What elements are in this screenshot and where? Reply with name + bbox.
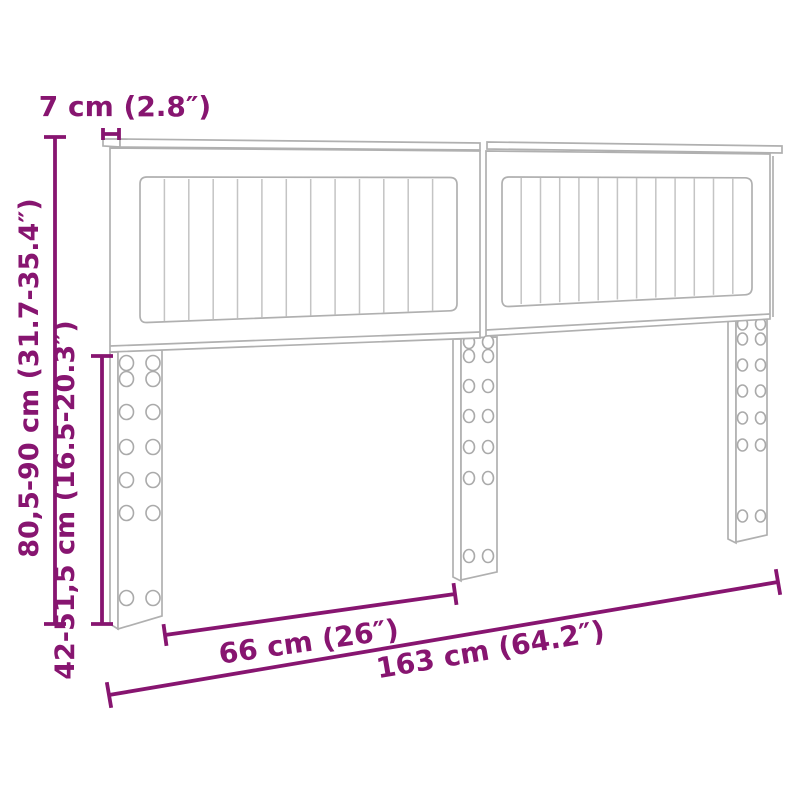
leg-middle-side-face — [453, 339, 461, 581]
dimension-line-total-width — [107, 569, 780, 708]
screw-hole — [464, 472, 475, 485]
screw-hole — [120, 591, 134, 606]
leg-right-front-face — [736, 318, 767, 542]
top-rail-left-end-face — [103, 139, 120, 147]
screw-hole — [146, 405, 160, 420]
headboard-dimension-diagram: 7 cm (2.8″) 80,5-90 cm (31.7-35.4″) 42-5… — [0, 0, 800, 800]
screw-hole — [756, 385, 766, 397]
screw-hole — [146, 473, 160, 488]
leg-left-side-face — [110, 352, 118, 629]
screw-hole — [146, 591, 160, 606]
label-top-rail-depth: 7 cm (2.8″) — [39, 90, 211, 123]
screw-hole — [483, 441, 494, 454]
screw-hole — [756, 412, 766, 424]
screw-hole — [146, 356, 160, 371]
screw-hole — [756, 439, 766, 451]
label-total-width: 163 cm (64.2″) — [374, 614, 607, 685]
panel-right-face — [486, 151, 770, 336]
screw-hole — [738, 439, 748, 451]
screw-hole — [483, 380, 494, 393]
screw-hole — [120, 372, 134, 387]
label-leg-height: 42-51,5 cm (16.5-20.3″) — [50, 320, 81, 680]
screw-hole — [483, 350, 494, 363]
screw-hole — [483, 336, 494, 349]
screw-hole — [738, 412, 748, 424]
panel-right — [486, 151, 773, 336]
screw-hole — [483, 410, 494, 423]
leg-left — [110, 350, 162, 629]
headboard-legs — [110, 318, 767, 629]
screw-hole — [146, 506, 160, 521]
screw-hole — [464, 410, 475, 423]
leg-middle — [453, 337, 497, 581]
screw-hole — [464, 550, 475, 563]
screw-holes — [120, 318, 766, 606]
screw-hole — [756, 333, 766, 345]
leg-right-side-face — [728, 320, 736, 543]
screw-hole — [483, 550, 494, 563]
screw-hole — [483, 472, 494, 485]
screw-hole — [464, 350, 475, 363]
screw-hole — [120, 506, 134, 521]
screw-hole — [464, 380, 475, 393]
screw-hole — [756, 359, 766, 371]
screw-hole — [146, 372, 160, 387]
screw-hole — [120, 356, 134, 371]
panel-left — [110, 148, 480, 352]
screw-hole — [120, 440, 134, 455]
screw-hole — [146, 440, 160, 455]
leg-left-front-face — [118, 350, 162, 629]
label-total-height: 80,5-90 cm (31.7-35.4″) — [14, 198, 45, 558]
headboard-panels — [110, 148, 773, 352]
screw-hole — [738, 385, 748, 397]
screw-hole — [120, 473, 134, 488]
screw-hole — [738, 359, 748, 371]
screw-hole — [464, 441, 475, 454]
screw-hole — [738, 510, 748, 522]
screw-hole — [756, 510, 766, 522]
diagram-canvas: 7 cm (2.8″) 80,5-90 cm (31.7-35.4″) 42-5… — [0, 0, 800, 800]
screw-hole — [120, 405, 134, 420]
screw-hole — [738, 333, 748, 345]
leg-middle-front-face — [461, 337, 497, 580]
